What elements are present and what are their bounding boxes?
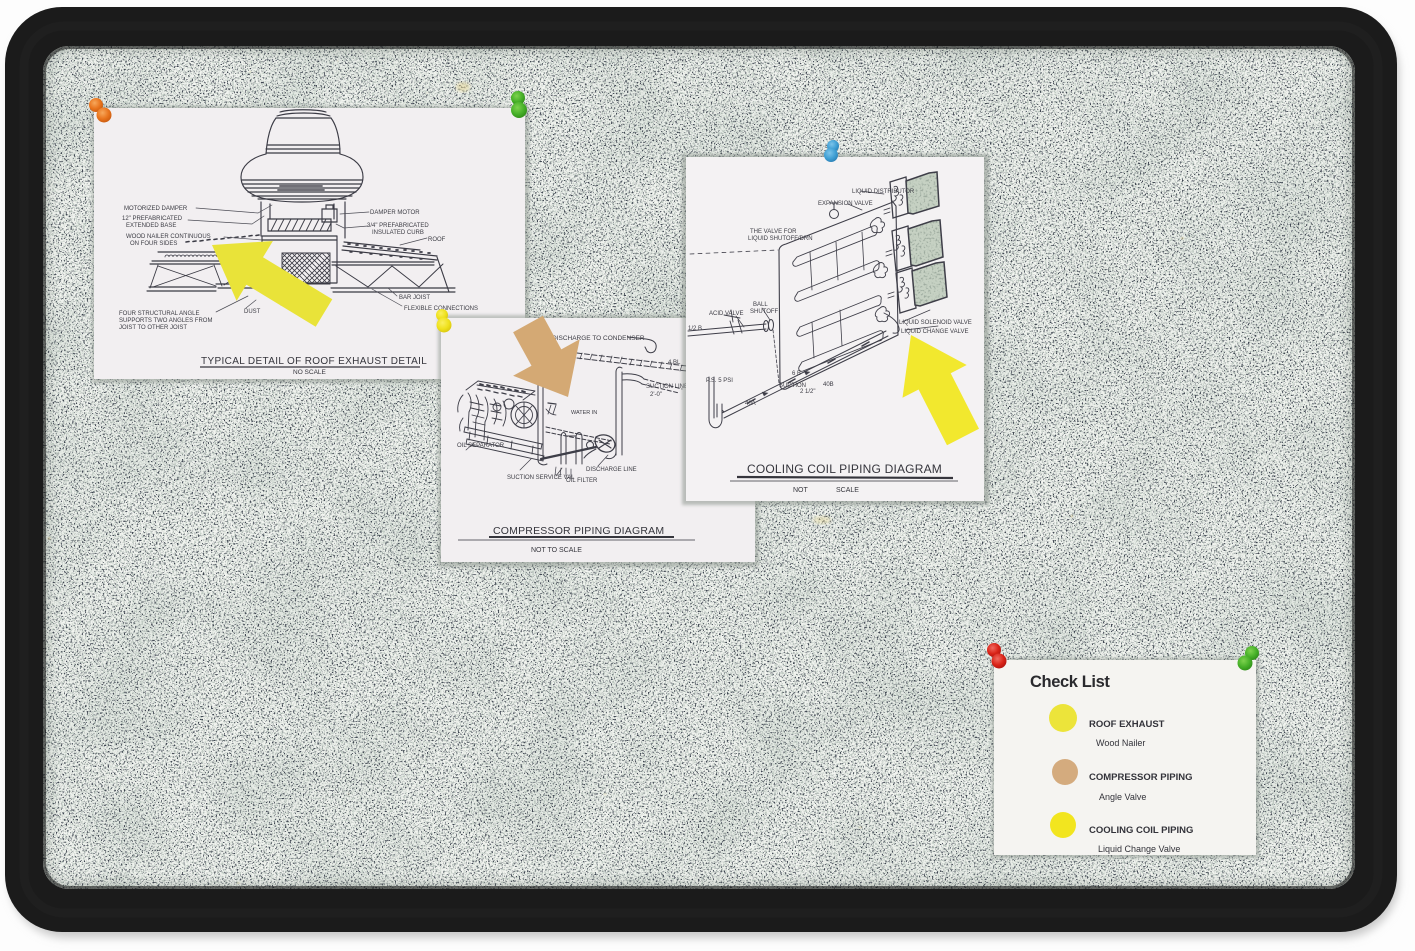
svg-text:6 B: 6 B [792,371,801,377]
svg-text:SHUTOFF: SHUTOFF [750,309,779,315]
svg-text:Wood Nailer: Wood Nailer [1096,738,1145,748]
svg-text:Angle Valve: Angle Valve [1099,792,1146,802]
svg-text:ON FOUR SIDES: ON FOUR SIDES [130,241,177,247]
svg-text:JOIST TO OTHER JOIST: JOIST TO OTHER JOIST [119,325,187,331]
svg-text:SCALE: SCALE [836,487,859,494]
svg-text:40B: 40B [823,382,834,388]
svg-text:LIQUID CHANGE VALVE: LIQUID CHANGE VALVE [901,329,968,335]
svg-text:WATER IN: WATER IN [571,410,597,416]
svg-text:Check List: Check List [1030,673,1110,691]
svg-text:LIQUID DISTRIBUTOR: LIQUID DISTRIBUTOR [852,189,915,195]
svg-text:BAR JOIST: BAR JOIST [399,295,430,301]
svg-text:ACID VALVE: ACID VALVE [709,311,743,317]
svg-text:2 1/2": 2 1/2" [800,389,815,395]
svg-text:3/4" PREFABRICATED: 3/4" PREFABRICATED [367,223,429,229]
svg-text:SUCTION LINE: SUCTION LINE [646,384,688,390]
svg-text:COOLING COIL PIPING DIAGRAM: COOLING COIL PIPING DIAGRAM [747,462,942,476]
svg-text:WOOD NAILER CONTINUOUS: WOOD NAILER CONTINUOUS [126,234,211,240]
svg-text:OIL SEPARATOR: OIL SEPARATOR [457,443,505,449]
svg-text:ROOF EXHAUST: ROOF EXHAUST [1089,719,1165,730]
svg-text:MOTORIZED DAMPER: MOTORIZED DAMPER [124,206,188,212]
svg-text:OIL FILTER: OIL FILTER [566,478,598,484]
svg-text:LIQUID SOLENOID VALVE: LIQUID SOLENOID VALVE [899,320,972,326]
svg-text:SUPPORTS TWO ANGLES FROM: SUPPORTS TWO ANGLES FROM [119,318,212,324]
svg-text:TYPICAL DETAIL OF ROOF EXHAUST: TYPICAL DETAIL OF ROOF EXHAUST DETAIL [201,356,427,367]
svg-text:EXPANSION VALVE: EXPANSION VALVE [818,201,873,207]
svg-text:COOLING COIL PIPING: COOLING COIL PIPING [1089,825,1193,836]
svg-text:LIQUID SHUTOFF/DRN: LIQUID SHUTOFF/DRN [748,236,813,242]
svg-text:DUST: DUST [244,309,261,315]
svg-text:DISCHARGE LINE: DISCHARGE LINE [586,467,637,473]
svg-text:P.S. 5 PSI: P.S. 5 PSI [706,378,733,384]
svg-text:ROOF: ROOF [428,237,446,243]
svg-text:1/2 B: 1/2 B [688,326,702,332]
svg-text:SUCTION SERVICE VAL: SUCTION SERVICE VAL [507,475,575,481]
svg-text:4 BL: 4 BL [668,360,681,366]
svg-text:40A: 40A [745,401,756,407]
svg-text:COMPRESSOR PIPING: COMPRESSOR PIPING [1089,772,1192,783]
svg-text:EXTENDED BASE: EXTENDED BASE [126,223,176,229]
svg-text:FOUR STRUCTURAL ANGLE: FOUR STRUCTURAL ANGLE [119,311,199,317]
svg-text:DAMPER MOTOR: DAMPER MOTOR [370,210,420,216]
svg-text:12" PREFABRICATED: 12" PREFABRICATED [122,216,183,222]
svg-text:INSULATED CURB: INSULATED CURB [372,230,424,236]
svg-text:COMPRESSOR PIPING DIAGRAM: COMPRESSOR PIPING DIAGRAM [493,525,664,537]
svg-text:NO SCALE: NO SCALE [293,369,327,376]
svg-text:DISCHARGE TO CONDENSER: DISCHARGE TO CONDENSER [552,335,645,342]
svg-text:BALL: BALL [753,302,768,308]
svg-text:2'-0": 2'-0" [650,392,662,398]
svg-text:THE VALVE FOR: THE VALVE FOR [750,229,797,235]
svg-text:Liquid Change Valve: Liquid Change Valve [1098,844,1180,854]
svg-text:NOT: NOT [793,487,809,494]
svg-text:NOT TO SCALE: NOT TO SCALE [531,547,582,554]
